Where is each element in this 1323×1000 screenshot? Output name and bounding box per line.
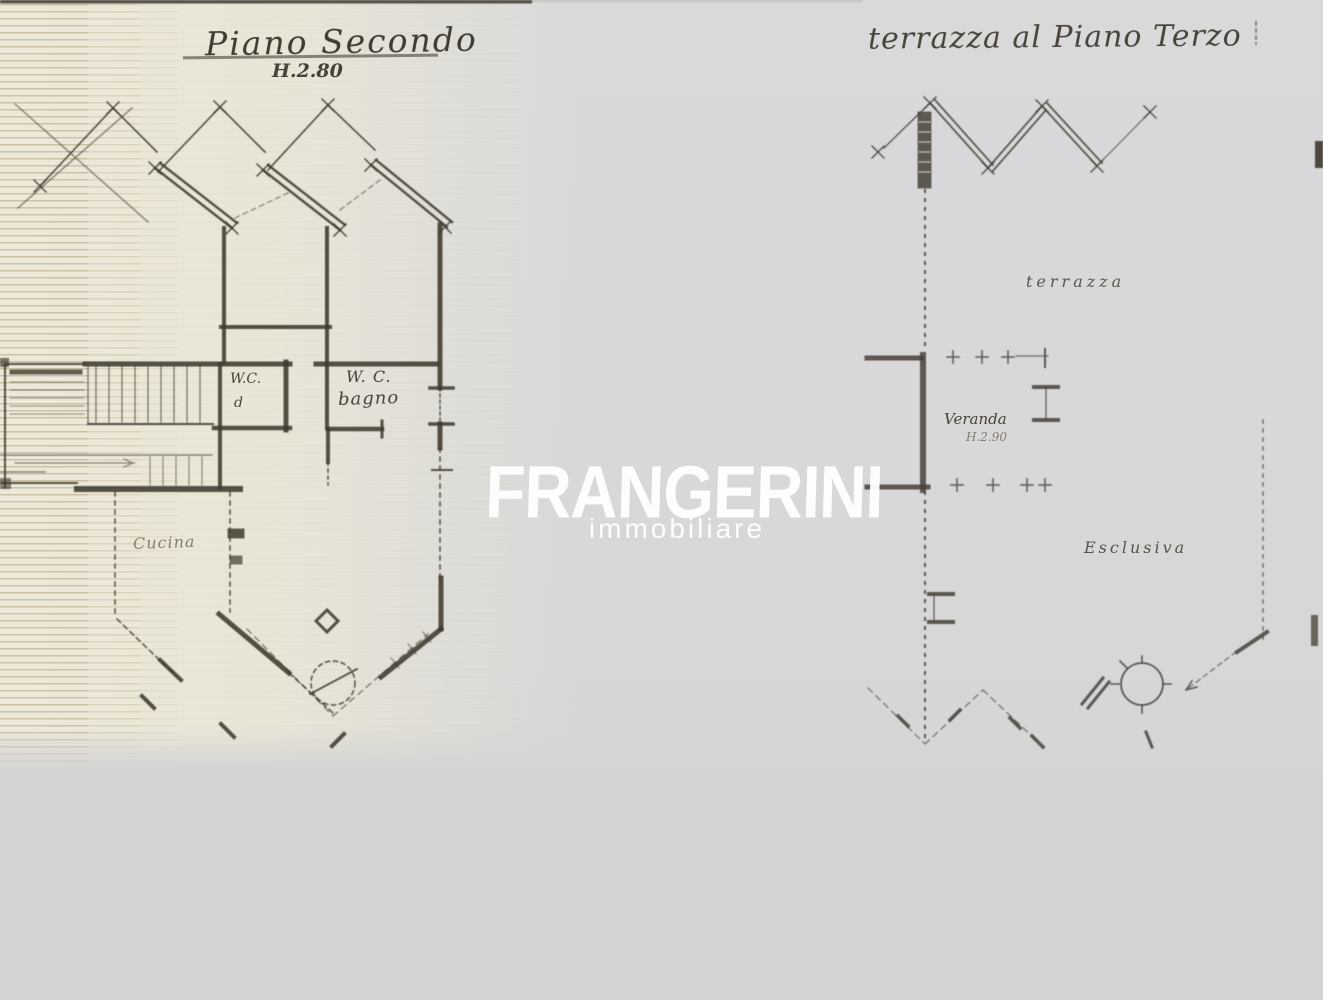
right-plan <box>867 97 1267 747</box>
label-veranda: Veranda <box>944 410 1007 428</box>
left-plan-roof-peaks <box>15 99 452 236</box>
right-plan-title: terrazza al Piano Terzo <box>868 18 1242 56</box>
label-veranda-height: H.2.90 <box>966 430 1007 444</box>
label-wc: W.C. <box>230 371 261 387</box>
label-cucina: Cucina <box>133 532 196 553</box>
label-bagno-wc: W. C. <box>346 367 392 386</box>
cucina-walls <box>0 472 244 680</box>
label-bagno: bagno <box>338 387 400 410</box>
right-plan-zigzag-roof <box>872 97 1156 188</box>
right-plan-bottom <box>868 420 1267 747</box>
left-plan-height-note: H.2.80 <box>272 60 343 82</box>
left-plan <box>0 99 453 746</box>
watermark-brand-text: FRANGERINI <box>470 456 899 530</box>
label-esclusiva: Esclusiva <box>1084 538 1187 557</box>
label-terrazza: terrazza <box>1026 272 1125 291</box>
left-plan-walls <box>221 225 453 677</box>
scanned-floorplan-page: Piano Secondo H.2.80 terrazza al Piano T… <box>0 0 1323 1000</box>
label-wc-sub: d <box>234 395 243 411</box>
stairs <box>0 364 213 488</box>
left-plan-bottom <box>142 610 428 746</box>
agency-watermark: FRANGERINI immobiliare <box>472 456 882 543</box>
